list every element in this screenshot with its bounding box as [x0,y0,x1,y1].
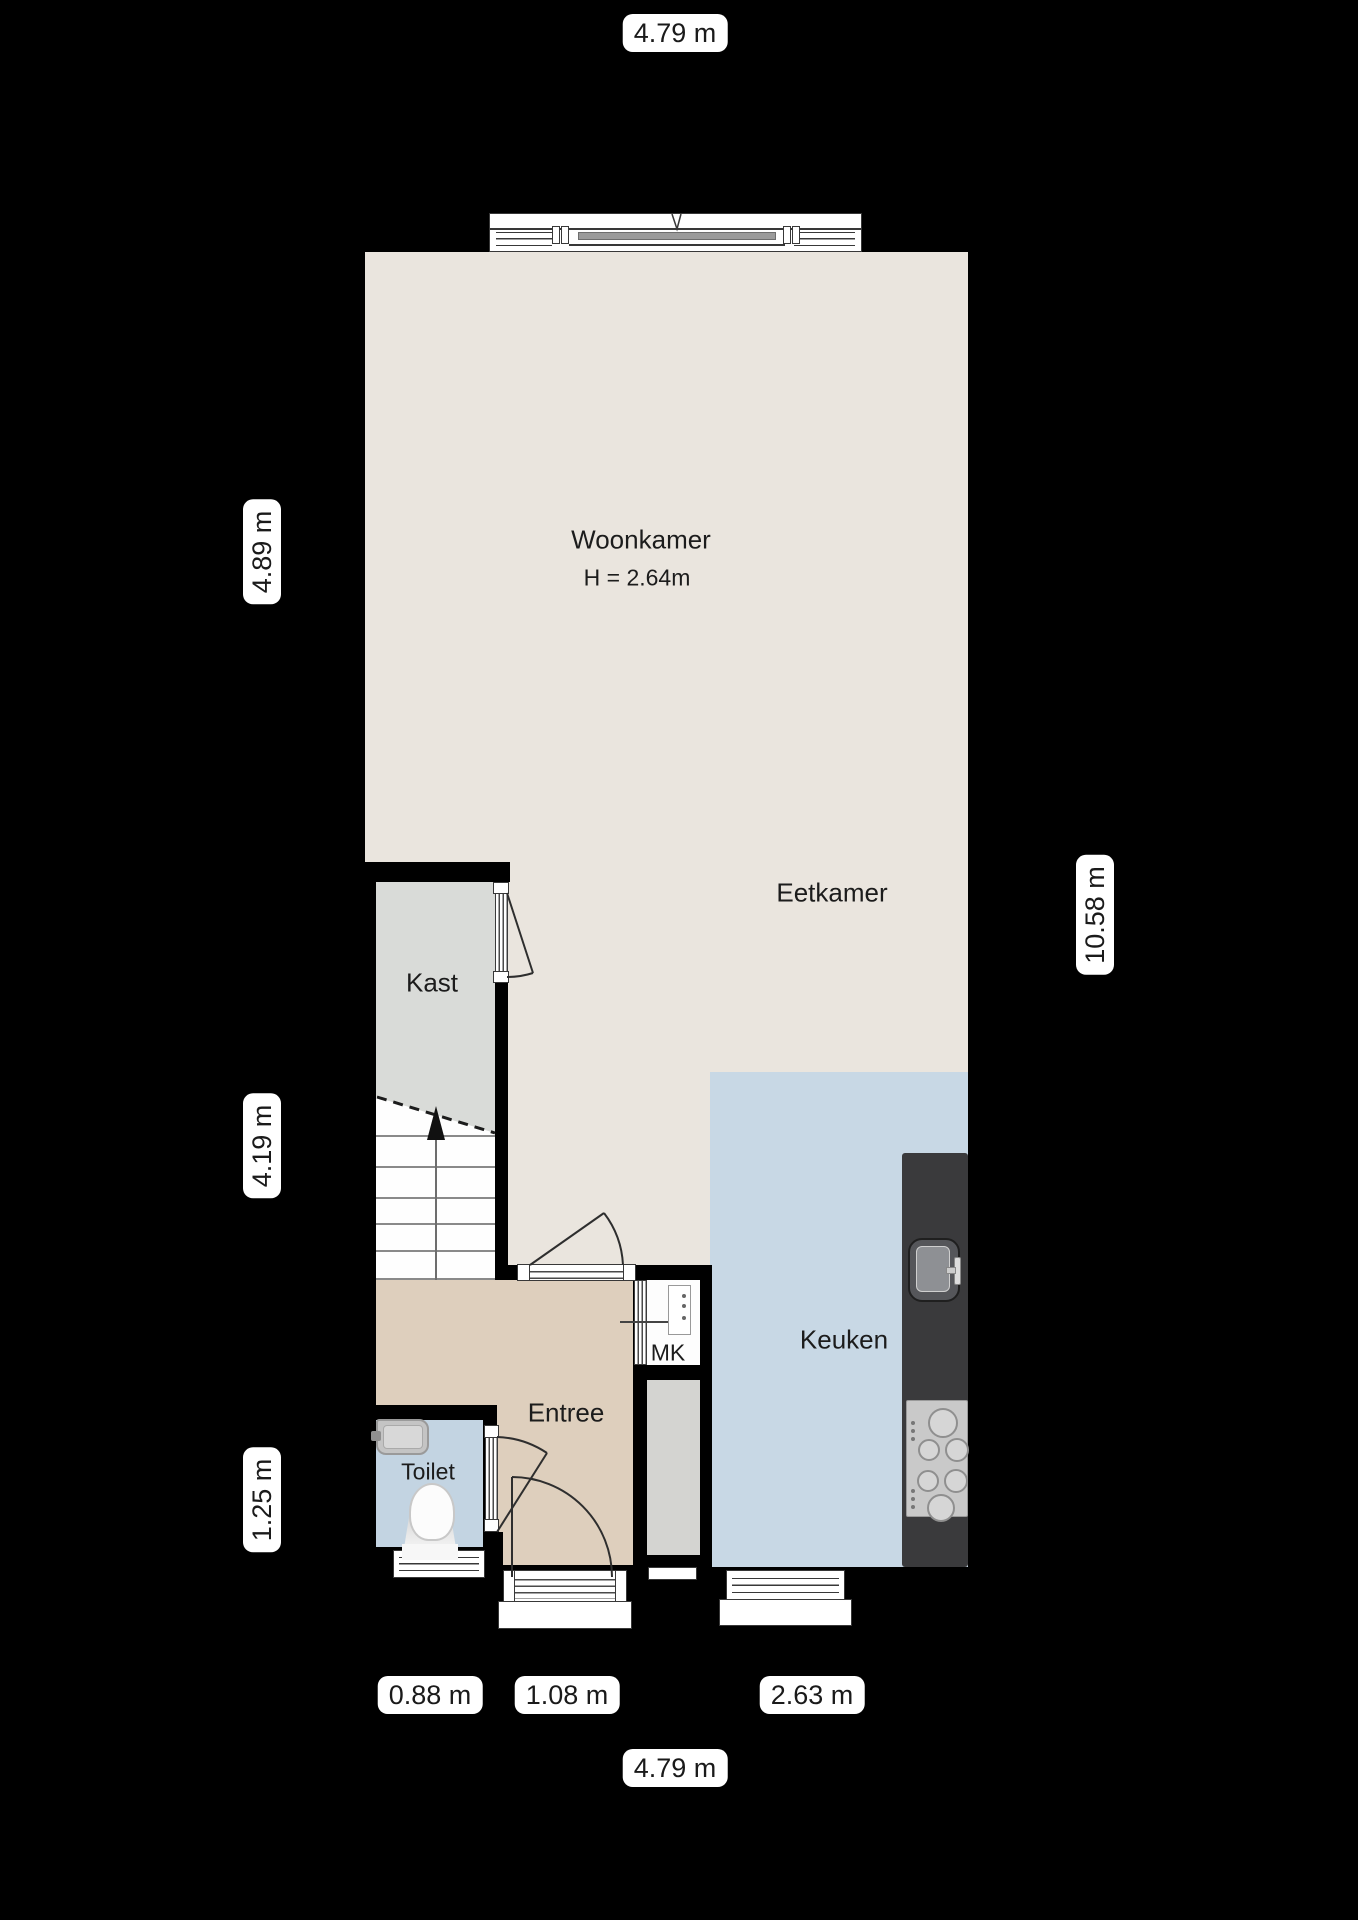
toilet-door-jamb [484,1425,499,1438]
kitchen-window-sill [719,1599,852,1626]
room-label-eetkamer: Eetkamer [776,878,887,909]
burner [927,1494,955,1522]
washbasin [376,1419,429,1455]
eetkamer-door-band [517,1264,636,1281]
burner [944,1469,968,1493]
kitchen-window [726,1570,845,1600]
alcove-floor [647,1380,704,1555]
window-mullion [552,226,560,244]
hob-knob [911,1421,915,1425]
hob-knob [911,1429,915,1433]
room-label-entree: Entree [528,1398,605,1429]
dim-right-height: 10.58 m [1076,855,1114,975]
front-door-outer-sill [498,1601,632,1629]
wall-right [968,252,982,1600]
meter-dot [682,1316,686,1320]
kast-door-jamb [493,882,509,894]
eetkamer-door-jamb [623,1264,636,1281]
room-label-toilet: Toilet [401,1459,455,1486]
toilet-door-jamb [484,1519,499,1532]
washbasin-faucet [371,1431,381,1441]
meter-panel [668,1285,691,1335]
room-label-mk: MK [651,1340,686,1367]
mk-door [634,1280,647,1365]
room-label-woonkamer-height: H = 2.64m [584,565,691,592]
front-door-jamb [615,1570,627,1603]
front-door-threshold [515,1574,615,1599]
hob-knob [911,1489,915,1493]
sink-basin [916,1246,950,1292]
wall-mk-bottom [647,1365,703,1380]
kast-door-jamb [493,971,509,983]
sliding-door-track [569,244,785,246]
stair-center-line [435,1107,437,1280]
dim-bottom-seg-1: 0.88 m [378,1676,483,1714]
room-label-woonkamer: Woonkamer [571,525,711,556]
window-mullion [783,226,791,244]
wall-toilet-top [365,1405,497,1420]
floorplan-canvas: Woonkamer H = 2.64m Eetkamer Kast Keuken… [0,0,1358,1920]
eetkamer-door-jamb [517,1264,530,1281]
window-mullion [561,226,569,244]
window-mullion [792,226,800,244]
kast-door [495,893,508,973]
sliding-door-glazing [578,232,776,240]
dim-bottom-width: 4.79 m [623,1749,728,1787]
toilet-bowl [409,1483,455,1541]
wall-kast-top [365,862,510,882]
meter-dot [682,1304,686,1308]
burner [945,1438,969,1462]
dim-top-width: 4.79 m [623,14,728,52]
burner [918,1439,940,1461]
meter-dot [682,1294,686,1298]
hob-knob [911,1437,915,1441]
burner [917,1470,939,1492]
toilet-tank [402,1544,458,1560]
kitchen-sink [908,1238,960,1302]
toilet-door [485,1437,498,1521]
front-door-band [503,1570,627,1603]
front-door-jamb [503,1570,515,1603]
dim-left-lower: 1.25 m [243,1448,281,1553]
wall-mk-keuken [700,1265,712,1580]
alcove-step [648,1567,697,1580]
hob-knob [911,1505,915,1509]
gas-hob [906,1400,968,1517]
hob-knob [911,1497,915,1501]
eetkamer-door-leafband [529,1266,624,1279]
window-right-glass [794,232,855,246]
window-front-band [489,213,862,252]
washbasin-bowl [383,1425,423,1449]
window-sill-line [490,228,861,230]
dim-left-middle: 4.19 m [243,1094,281,1199]
burner [928,1408,958,1438]
dim-left-upper: 4.89 m [243,500,281,605]
sink-faucet-arm [946,1267,956,1274]
window-left-glass [496,232,552,246]
dim-bottom-seg-2: 1.08 m [515,1676,620,1714]
wall-left-lower [360,862,376,1578]
room-label-kast: Kast [406,968,458,999]
room-label-keuken: Keuken [800,1325,888,1356]
kitchen-window-glass [732,1578,839,1593]
dim-bottom-seg-3: 2.63 m [760,1676,865,1714]
